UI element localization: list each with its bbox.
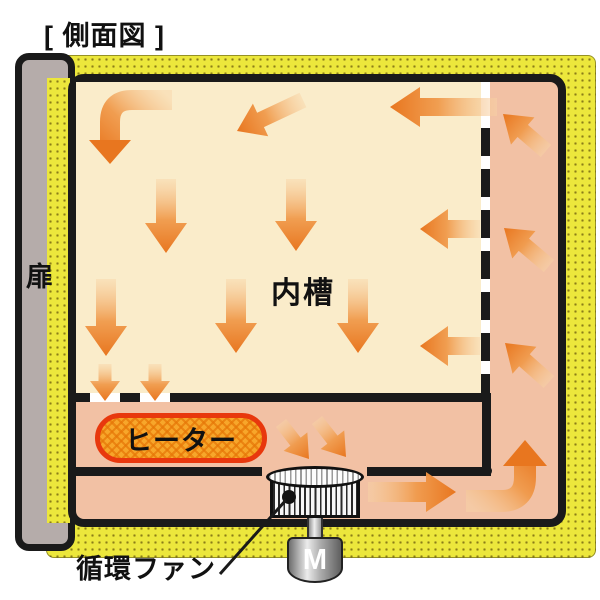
wall-dashes (481, 128, 490, 393)
duct-wall-horizontal-left (72, 467, 262, 476)
heater: ヒーター (95, 413, 267, 463)
side-view-diagram: ヒーター M [ 側面図 ] 扉 内槽 循環ファン (0, 0, 600, 600)
chamber-label: 内槽 (271, 268, 335, 312)
motor: M (287, 537, 343, 583)
door-label: 扉 (26, 255, 53, 294)
door-insulation (47, 78, 70, 523)
duct-wall-vertical (482, 393, 491, 476)
fan-hub-dot (282, 490, 296, 504)
inner-chamber (76, 82, 481, 393)
chamber-floor (72, 393, 491, 402)
floor-air-gap (140, 393, 170, 402)
duct-wall-horizontal-right (367, 467, 492, 476)
motor-label: M (303, 544, 327, 577)
fan-top-ellipse (266, 466, 364, 488)
diagram-title: [ 側面図 ] (44, 14, 165, 53)
fan-label: 循環ファン (76, 547, 216, 586)
perforated-right-wall (481, 82, 490, 393)
floor-air-gap (90, 393, 120, 402)
heater-label: ヒーター (125, 419, 237, 458)
